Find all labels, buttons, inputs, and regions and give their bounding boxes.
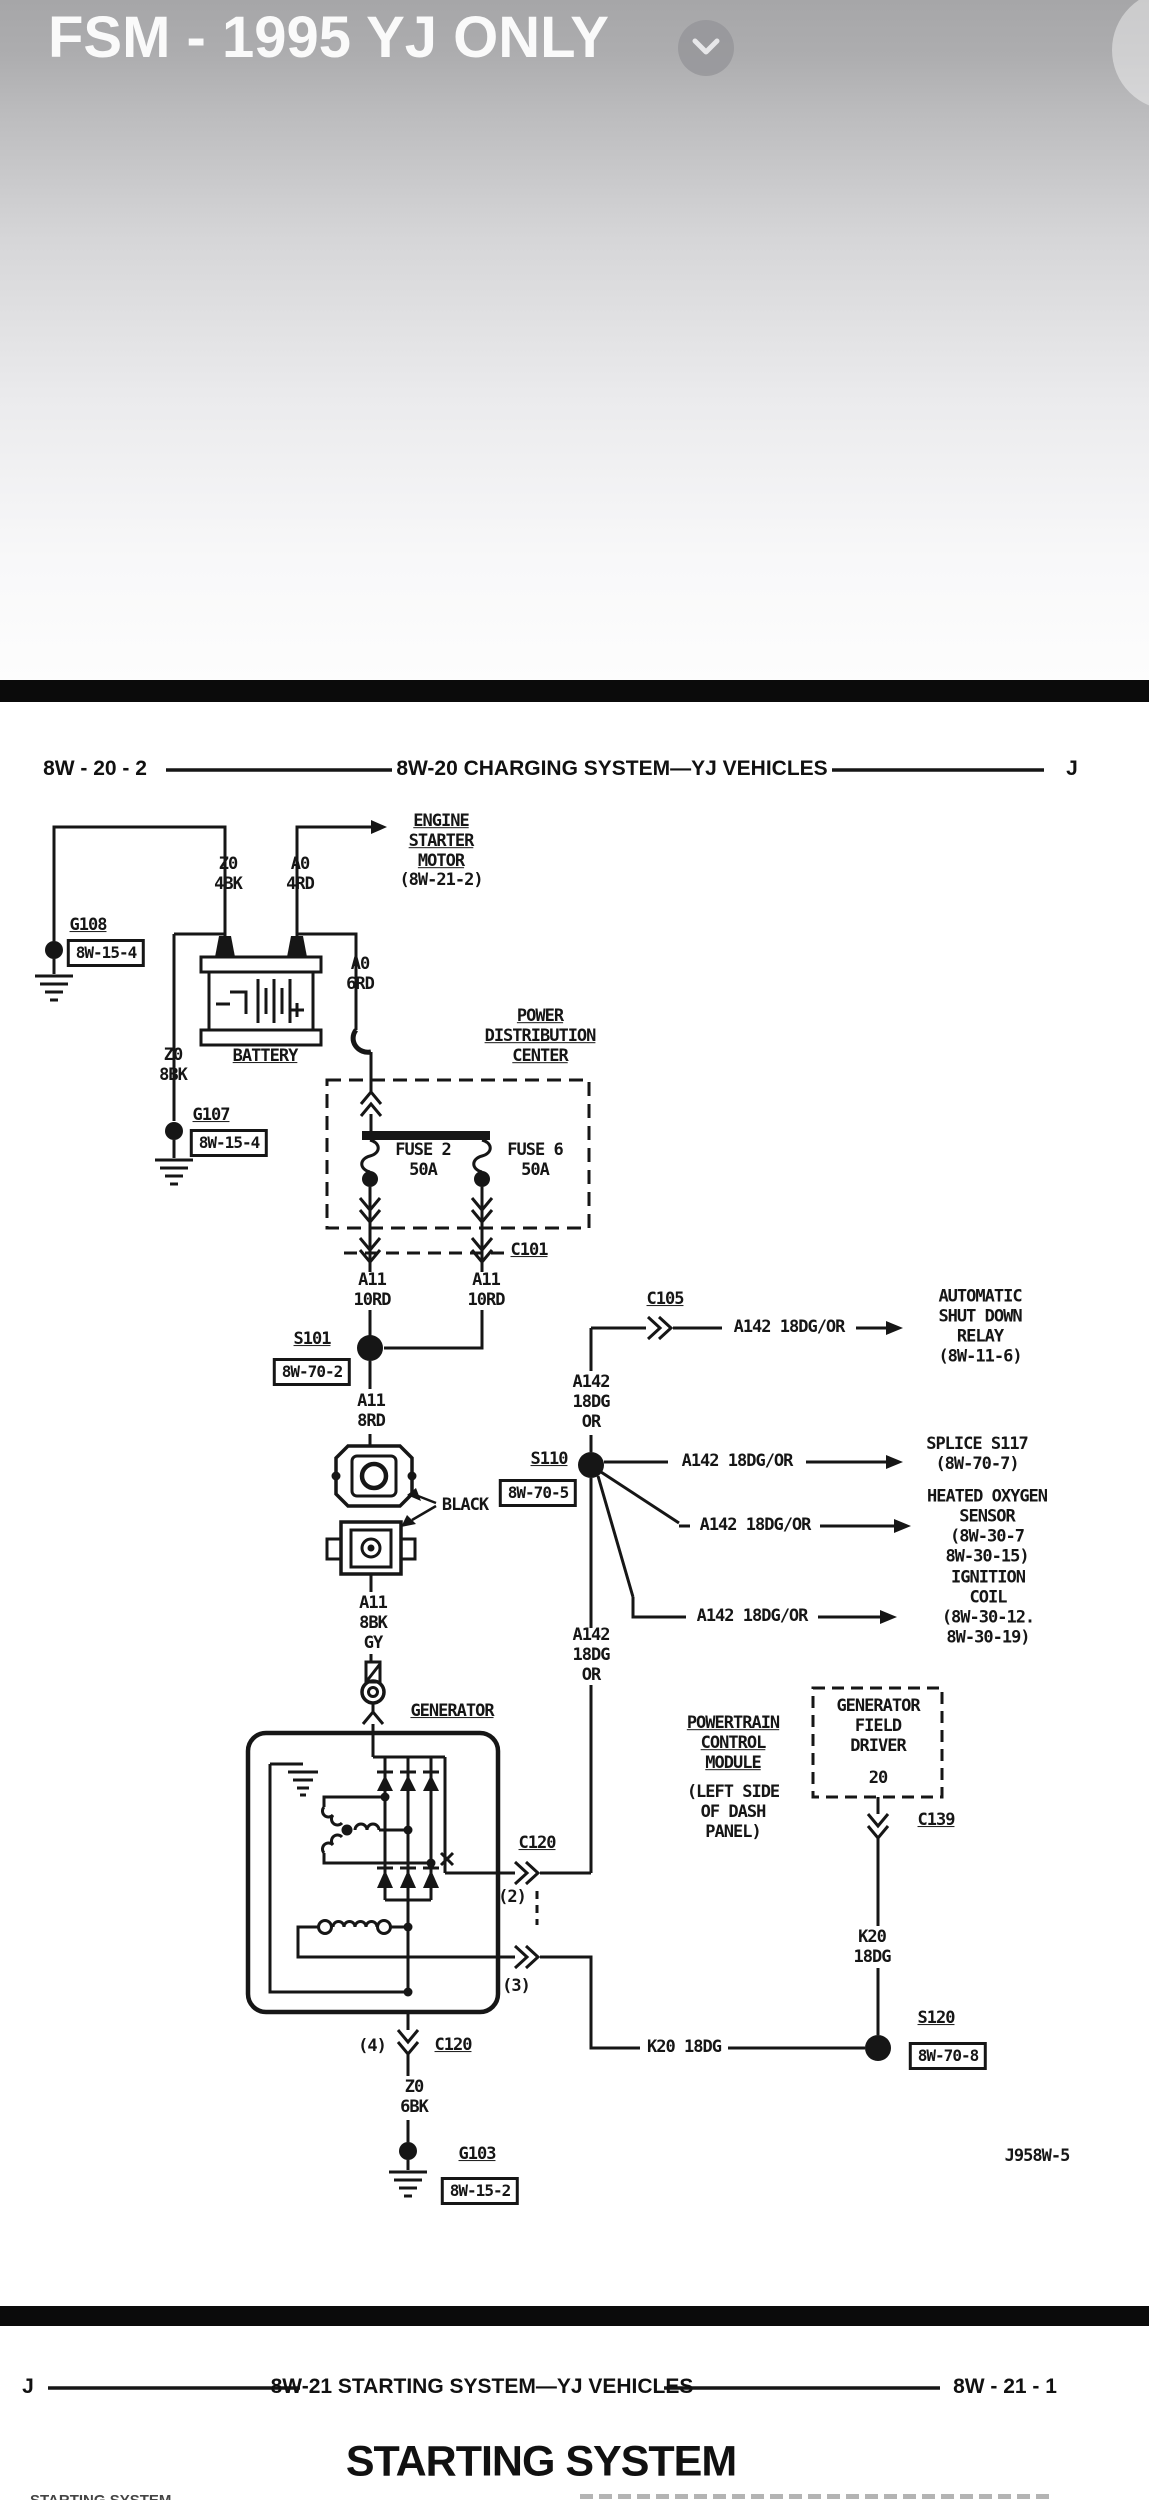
generator-label: GENERATOR — [410, 1702, 493, 1722]
s110-branches — [578, 1452, 911, 1624]
wire-label-z0-6bk: Z0 6BK — [400, 2078, 428, 2118]
splice-s110-label: S110 — [531, 1450, 568, 1470]
gfd-pin-number: 20 — [869, 1769, 887, 1789]
ground-g108-ref: 8W-15-4 — [67, 939, 145, 967]
dest-engine-starter-ref: (8W-21-2) — [399, 871, 482, 891]
clipped-text-right — [580, 2494, 1050, 2499]
wire-label-a11-8bk-gy: A11 8BK GY — [359, 1594, 387, 1654]
wire-label-a142-coil: A142 18DG/OR — [697, 1607, 808, 1627]
wire-label-z0-4bk: Z0 4BK — [214, 855, 242, 895]
wire-label-a0-6rd: A0 6RD — [346, 955, 374, 995]
wire-label-a0-4rd: A0 4RD — [286, 855, 314, 895]
ground-g107-ref: 8W-15-4 — [190, 1129, 268, 1157]
ground-g103-label: G103 — [459, 2145, 496, 2165]
pcm-label: POWERTRAIN CONTROL MODULE — [687, 1714, 779, 1774]
gfd-label: GENERATOR FIELD DRIVER — [836, 1697, 919, 1757]
footer-page-number: 8W - 21 - 1 — [953, 2375, 1057, 2399]
connector-color-label: BLACK — [442, 1496, 488, 1516]
wire-label-k20-stack: K20 18DG — [854, 1928, 891, 1968]
fuse6-label: FUSE 6 50A — [507, 1141, 562, 1181]
figure-code: J958W-5 — [1005, 2147, 1070, 2167]
wire-label-a11-10rd-right: A11 10RD — [468, 1271, 505, 1311]
battery-label: BATTERY — [233, 1047, 298, 1067]
splice-s120-ref: 8W-70-8 — [909, 2042, 987, 2070]
pdc-label: POWER DISTRIBUTION CENTER — [485, 1007, 596, 1067]
wire-label-a142-upper: A142 18DG OR — [573, 1373, 610, 1433]
dest-asd-relay: AUTOMATIC SHUT DOWN RELAY (8W-11-6) — [938, 1287, 1021, 1367]
c120-pin3-label: (3) — [502, 1977, 530, 1997]
dest-engine-starter-motor: ENGINE STARTER MOTOR — [409, 812, 474, 872]
footer-section-letter: J — [22, 2375, 34, 2399]
c120-pin4-label: (4) — [358, 2037, 386, 2057]
wire-label-a11-8rd: A11 8RD — [357, 1392, 385, 1432]
connector-c139-label: C139 — [918, 1811, 955, 1831]
dest-ignition-coil: IGNITION COIL (8W-30-12. 8W-30-19) — [942, 1568, 1034, 1648]
wire-label-a142-lower: A142 18DG OR — [573, 1626, 610, 1686]
wire-label-a142-c105: A142 18DG/OR — [734, 1318, 845, 1338]
wire-label-k20-inline: K20 18DG — [647, 2038, 721, 2058]
ground-g103-ref: 8W-15-2 — [441, 2177, 519, 2205]
wire-label-a11-10rd-left: A11 10RD — [354, 1271, 391, 1311]
dest-splice-s117: SPLICE S117 (8W-70-7) — [926, 1435, 1028, 1475]
ground-g108-label: G108 — [70, 916, 107, 936]
document-viewer: FSM - 1995 YJ ONLY 8W - 20 - 2 8W-20 CHA… — [0, 0, 1149, 2500]
ground-g107-label: G107 — [193, 1106, 230, 1126]
splice-s101-label: S101 — [294, 1330, 331, 1350]
wiring-diagram — [0, 0, 1149, 2500]
next-section-heading: STARTING SYSTEM — [346, 2438, 736, 2487]
splice-s120-label: S120 — [918, 2009, 955, 2029]
splice-s110-ref: 8W-70-5 — [499, 1479, 577, 1507]
connector-c101-label: C101 — [511, 1241, 548, 1261]
connector-c105-label: C105 — [647, 1290, 684, 1310]
footer-title: 8W-21 STARTING SYSTEM—YJ VEHICLES — [271, 2375, 694, 2399]
dest-heated-oxygen-sensor: HEATED OXYGEN SENSOR (8W-30-7 8W-30-15) — [927, 1487, 1047, 1567]
wire-label-z0-8bk: Z0 8BK — [159, 1046, 187, 1086]
c120-circuit — [445, 1328, 865, 2048]
c120-pin2-label: (2) — [498, 1888, 526, 1908]
wire-label-a142-s117: A142 18DG/OR — [682, 1452, 793, 1472]
wire-label-a142-o2: A142 18DG/OR — [700, 1516, 811, 1536]
connector-c120-label-lower: C120 — [435, 2036, 472, 2056]
fuse2-label: FUSE 2 50A — [395, 1141, 450, 1181]
connector-c120-label-upper: C120 — [519, 1834, 556, 1854]
splice-s101-ref: 8W-70-2 — [273, 1358, 351, 1386]
pcm-location: (LEFT SIDE OF DASH PANEL) — [687, 1783, 779, 1843]
clipped-text-left: STARTING SYSTEM — [30, 2492, 171, 2500]
